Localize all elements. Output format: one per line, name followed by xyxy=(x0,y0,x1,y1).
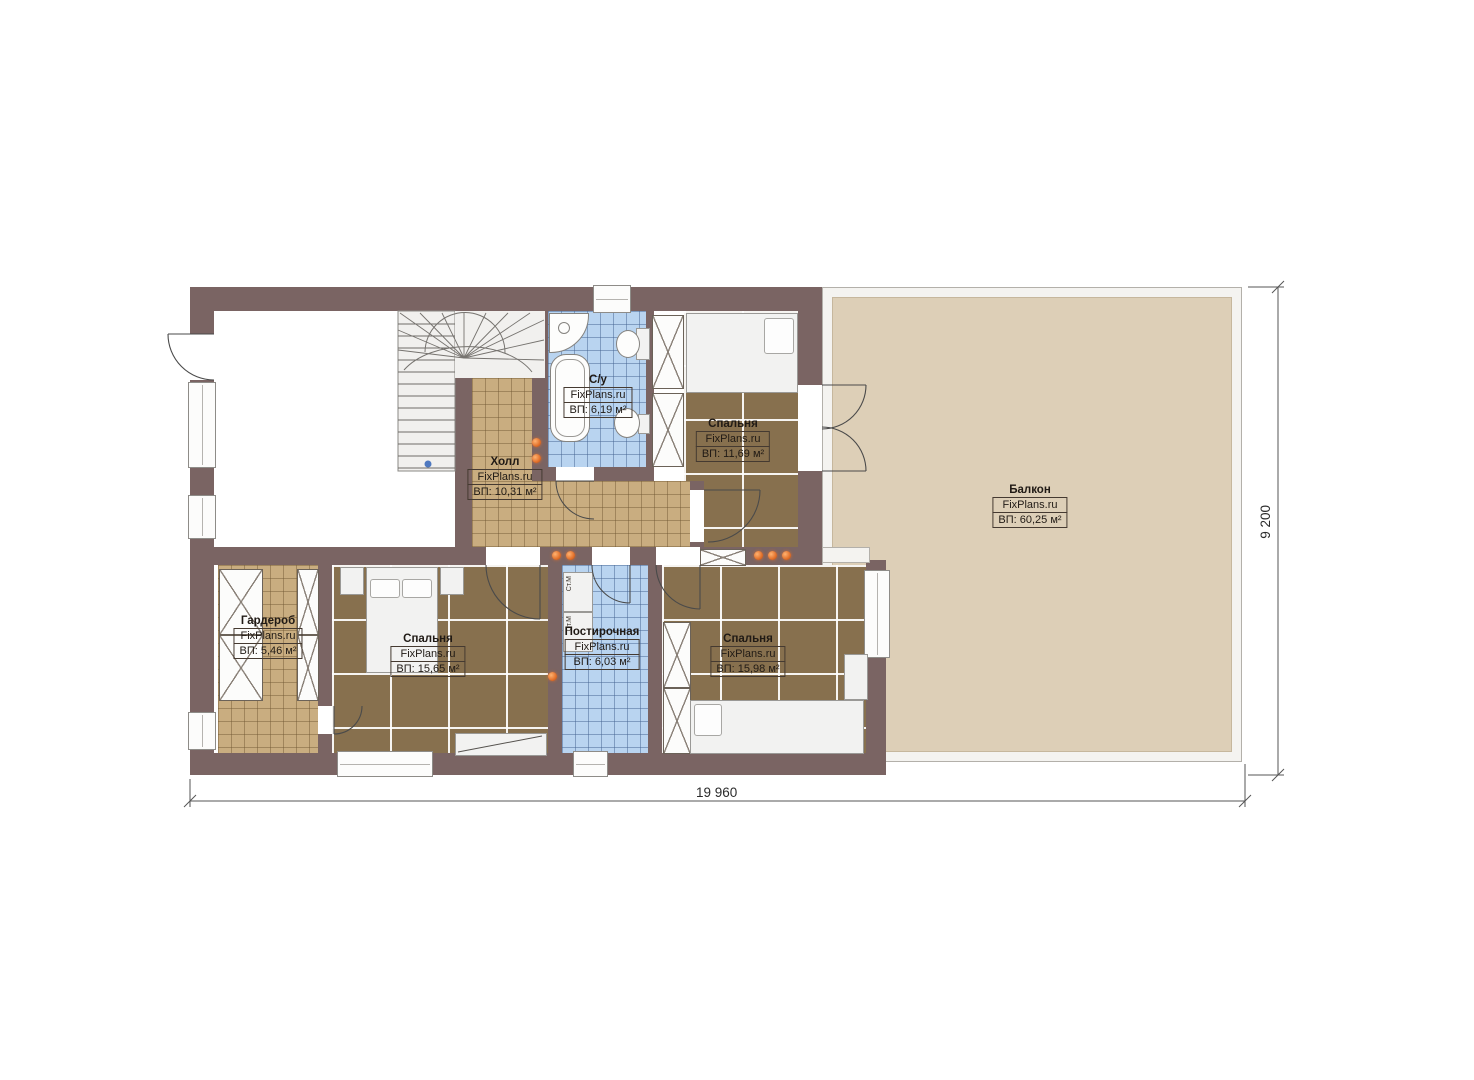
door-opening-bedroom-left xyxy=(486,547,540,565)
balcony-railing-corner xyxy=(822,547,870,563)
room-name: Холл xyxy=(467,456,542,468)
room-area: ВП: 6,03 м² xyxy=(565,654,640,670)
room-label-bedroom-right: Спальня FixPlans.ru ВП: 15,98 м² xyxy=(710,633,785,677)
pillow-bedroom-left-1 xyxy=(370,579,400,598)
wall-bedroom-laundry xyxy=(548,565,562,753)
brand-watermark: FixPlans.ru xyxy=(992,497,1067,513)
room-area: ВП: 6,19 м² xyxy=(563,402,632,418)
nightstand-bedroom-left-2 xyxy=(440,567,464,595)
room-area: ВП: 5,46 м² xyxy=(233,643,302,659)
spotlight-icon xyxy=(782,551,791,560)
wall-bottom xyxy=(190,753,886,775)
window-bottom-1 xyxy=(337,751,433,777)
nightstand-bedroom-left-1 xyxy=(340,567,364,595)
window-left-3 xyxy=(188,712,216,750)
spotlight-icon xyxy=(754,551,763,560)
closet-strip-2 xyxy=(652,393,684,467)
pillow-bedroom-right xyxy=(694,704,722,736)
room-name: Спальня xyxy=(390,633,465,645)
door-opening-bedroom-right xyxy=(656,547,700,565)
washing-machine-label: Ст.М xyxy=(566,576,573,591)
bench-bedroom-left xyxy=(455,733,547,756)
brand-watermark: FixPlans.ru xyxy=(467,469,542,485)
window-left-2 xyxy=(188,495,216,539)
spotlight-icon xyxy=(768,551,777,560)
room-name: Спальня xyxy=(710,633,785,645)
room-area: ВП: 10,31 м² xyxy=(467,484,542,500)
door-opening-wardrobe xyxy=(318,706,332,734)
pillow-bedroom-left-2 xyxy=(402,579,432,598)
room-name: С/у xyxy=(563,374,632,386)
wall-top xyxy=(190,287,822,311)
room-label-laundry: Постирочная FixPlans.ru ВП: 6,03 м² xyxy=(565,626,640,670)
room-area: ВП: 11,69 м² xyxy=(696,446,770,462)
brand-watermark: FixPlans.ru xyxy=(710,646,785,662)
spotlight-icon xyxy=(548,672,557,681)
room-area: ВП: 15,65 м² xyxy=(390,661,465,677)
wall-stair-spine xyxy=(455,345,472,547)
room-name: Балкон xyxy=(992,484,1067,496)
brand-watermark: FixPlans.ru xyxy=(233,628,302,644)
dimension-width: 19 960 xyxy=(692,785,741,800)
dimension-height: 9 200 xyxy=(1258,505,1273,539)
window-bottom-2 xyxy=(573,751,608,777)
room-name: Постирочная xyxy=(565,626,640,638)
room-label-wardrobe: Гардероб FixPlans.ru ВП: 5,46 м² xyxy=(233,615,302,659)
shower-head-icon xyxy=(558,322,570,334)
closet-strip-1 xyxy=(652,315,684,389)
room-area: ВП: 60,25 м² xyxy=(992,512,1067,528)
closet-middle-wall xyxy=(700,549,746,566)
room-label-bathroom: С/у FixPlans.ru ВП: 6,19 м² xyxy=(563,374,632,418)
nightstand-bedroom-right xyxy=(844,654,868,700)
spotlight-icon xyxy=(552,551,561,560)
brand-watermark: FixPlans.ru xyxy=(390,646,465,662)
brand-watermark: FixPlans.ru xyxy=(565,639,640,655)
room-name: Спальня xyxy=(696,418,770,430)
room-label-hall: Холл FixPlans.ru ВП: 10,31 м² xyxy=(467,456,542,500)
door-opening-balcony xyxy=(798,385,822,471)
spotlight-icon xyxy=(532,438,541,447)
room-label-balcony: Балкон FixPlans.ru ВП: 60,25 м² xyxy=(992,484,1067,528)
door-opening-entry xyxy=(190,334,214,380)
room-floor-void xyxy=(214,311,455,547)
door-opening-bedroom-top xyxy=(690,490,704,542)
wall-laundry-bedroom xyxy=(648,565,662,753)
window-bedroom-right-balcony xyxy=(864,570,890,658)
room-name: Гардероб xyxy=(233,615,302,627)
brand-watermark: FixPlans.ru xyxy=(563,387,632,403)
room-label-bedroom-left: Спальня FixPlans.ru ВП: 15,65 м² xyxy=(390,633,465,677)
door-opening-bathroom xyxy=(556,467,594,481)
toilet-bowl xyxy=(616,330,640,358)
closet-bedroom-right-1 xyxy=(663,622,691,688)
window-left-1 xyxy=(188,382,216,468)
window-top xyxy=(593,285,631,313)
room-label-bedroom-top: Спальня FixPlans.ru ВП: 11,69 м² xyxy=(696,418,770,462)
closet-bedroom-right-2 xyxy=(663,688,691,754)
spotlight-icon xyxy=(566,551,575,560)
brand-watermark: FixPlans.ru xyxy=(696,431,770,447)
room-area: ВП: 15,98 м² xyxy=(710,661,785,677)
door-opening-laundry xyxy=(592,547,630,565)
floor-plan-canvas: Ст.М Ст.М xyxy=(0,0,1474,1080)
pillow-bedroom-top xyxy=(764,318,794,354)
